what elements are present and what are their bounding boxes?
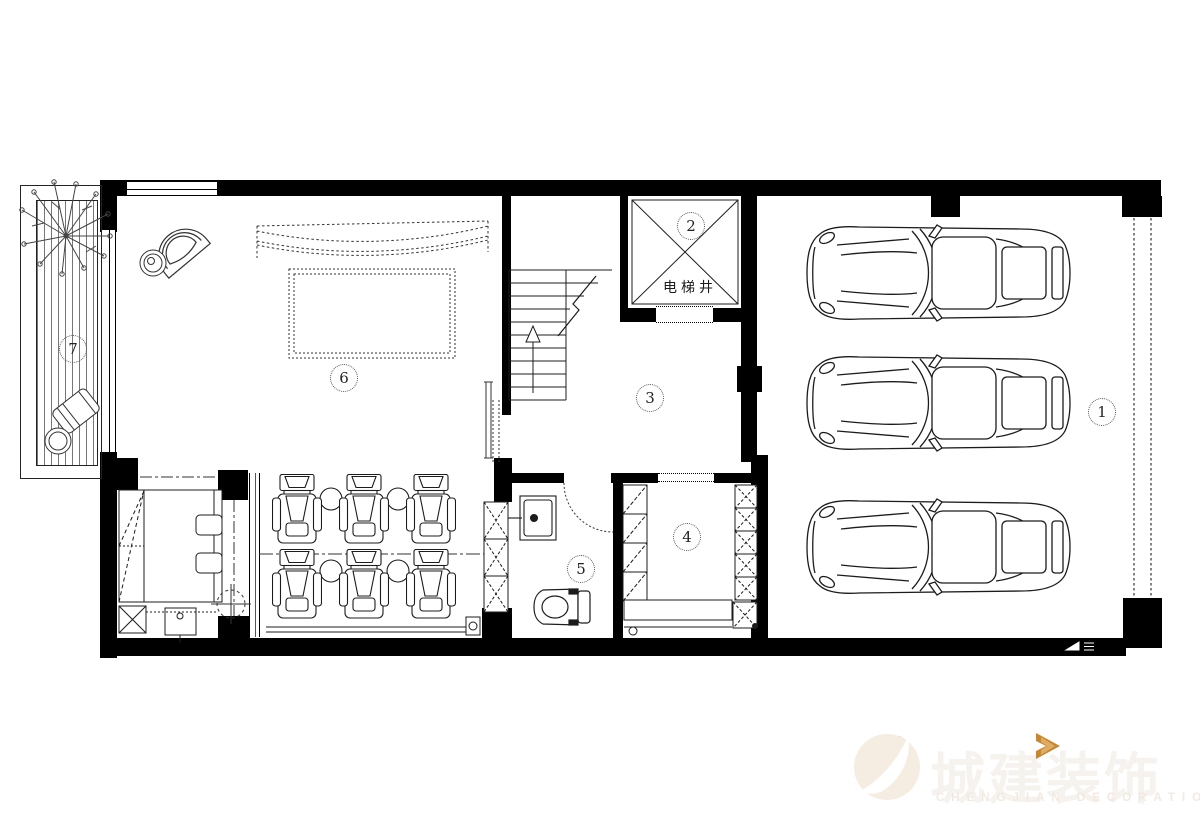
car-icon bbox=[807, 225, 1070, 321]
room-label-5: 5 bbox=[567, 555, 595, 583]
closet-left bbox=[623, 485, 647, 601]
room-number: 6 bbox=[339, 369, 349, 387]
room-number: 5 bbox=[576, 560, 586, 578]
theater-seat-icon bbox=[407, 475, 456, 544]
theater-seat-icon bbox=[407, 550, 456, 619]
ceiling-recess bbox=[289, 269, 455, 358]
room-number: 1 bbox=[1097, 403, 1107, 421]
room-label-1: 1 bbox=[1088, 398, 1116, 426]
level-marker-icon bbox=[1066, 642, 1094, 650]
room-label-7: 7 bbox=[59, 335, 87, 363]
door-swing bbox=[564, 483, 613, 532]
room-label-2: 2 bbox=[677, 212, 705, 240]
room-number: 3 bbox=[645, 389, 655, 407]
bench bbox=[624, 600, 732, 635]
platform-step bbox=[266, 617, 480, 635]
closet-right bbox=[733, 485, 758, 629]
room-label-6: 6 bbox=[330, 364, 358, 392]
elevator-shaft-label: 电梯井 bbox=[642, 277, 738, 297]
room-number: 4 bbox=[682, 528, 692, 546]
equipment-box bbox=[146, 608, 218, 643]
garage-door-track bbox=[1134, 218, 1151, 598]
curtain-screen bbox=[257, 221, 488, 258]
floor-plan: 1 2 3 4 5 6 7 电梯井 城建装饰 CHENGJIAN DECORAT… bbox=[0, 0, 1200, 839]
room-label-4: 4 bbox=[673, 523, 701, 551]
room-number: 7 bbox=[68, 340, 78, 358]
toilet-icon bbox=[534, 589, 590, 625]
car-icon bbox=[807, 355, 1070, 451]
room-number: 2 bbox=[686, 217, 696, 235]
glass-partition bbox=[484, 382, 493, 458]
cabinet bbox=[119, 490, 144, 602]
room-label-3: 3 bbox=[636, 384, 664, 412]
theater-seat-icon bbox=[340, 550, 389, 619]
chevron-icon bbox=[1034, 732, 1064, 760]
dashed-opening bbox=[493, 400, 499, 462]
side-table-icon bbox=[45, 428, 71, 454]
shaft-box bbox=[119, 606, 146, 633]
brand-watermark: 城建装饰 CHENGJIAN DECORATION bbox=[850, 726, 1180, 821]
stairs-icon bbox=[509, 270, 612, 400]
side-table-icon bbox=[140, 250, 166, 276]
plan-linework bbox=[0, 0, 1200, 839]
theater-seat-icon bbox=[273, 550, 322, 619]
sink-icon bbox=[508, 496, 556, 540]
theater-seat-icon bbox=[340, 475, 389, 544]
brand-name-en: CHENGJIAN DECORATION bbox=[936, 792, 1200, 804]
tree-icon bbox=[20, 180, 112, 276]
shelf-column bbox=[484, 502, 508, 612]
car-icon bbox=[807, 499, 1070, 595]
theater-seat-icon bbox=[273, 475, 322, 544]
brand-logo-icon bbox=[850, 728, 924, 802]
desk bbox=[144, 490, 222, 602]
